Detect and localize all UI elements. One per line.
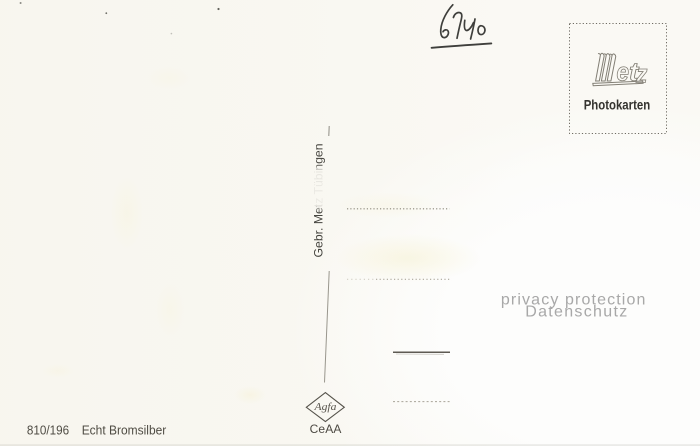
svg-text:Agfa: Agfa (313, 402, 336, 413)
svg-text:CeAA: CeAA (310, 422, 342, 436)
svg-text:z: z (635, 59, 647, 89)
svg-text:Gebr. Metz Tübingen: Gebr. Metz Tübingen (311, 144, 325, 258)
svg-text:Datenschutz: Datenschutz (525, 304, 627, 321)
svg-text:Echt Bromsilber: Echt Bromsilber (82, 423, 167, 438)
svg-text:Photokarten: Photokarten (584, 97, 651, 113)
svg-text:810/196: 810/196 (27, 423, 69, 438)
